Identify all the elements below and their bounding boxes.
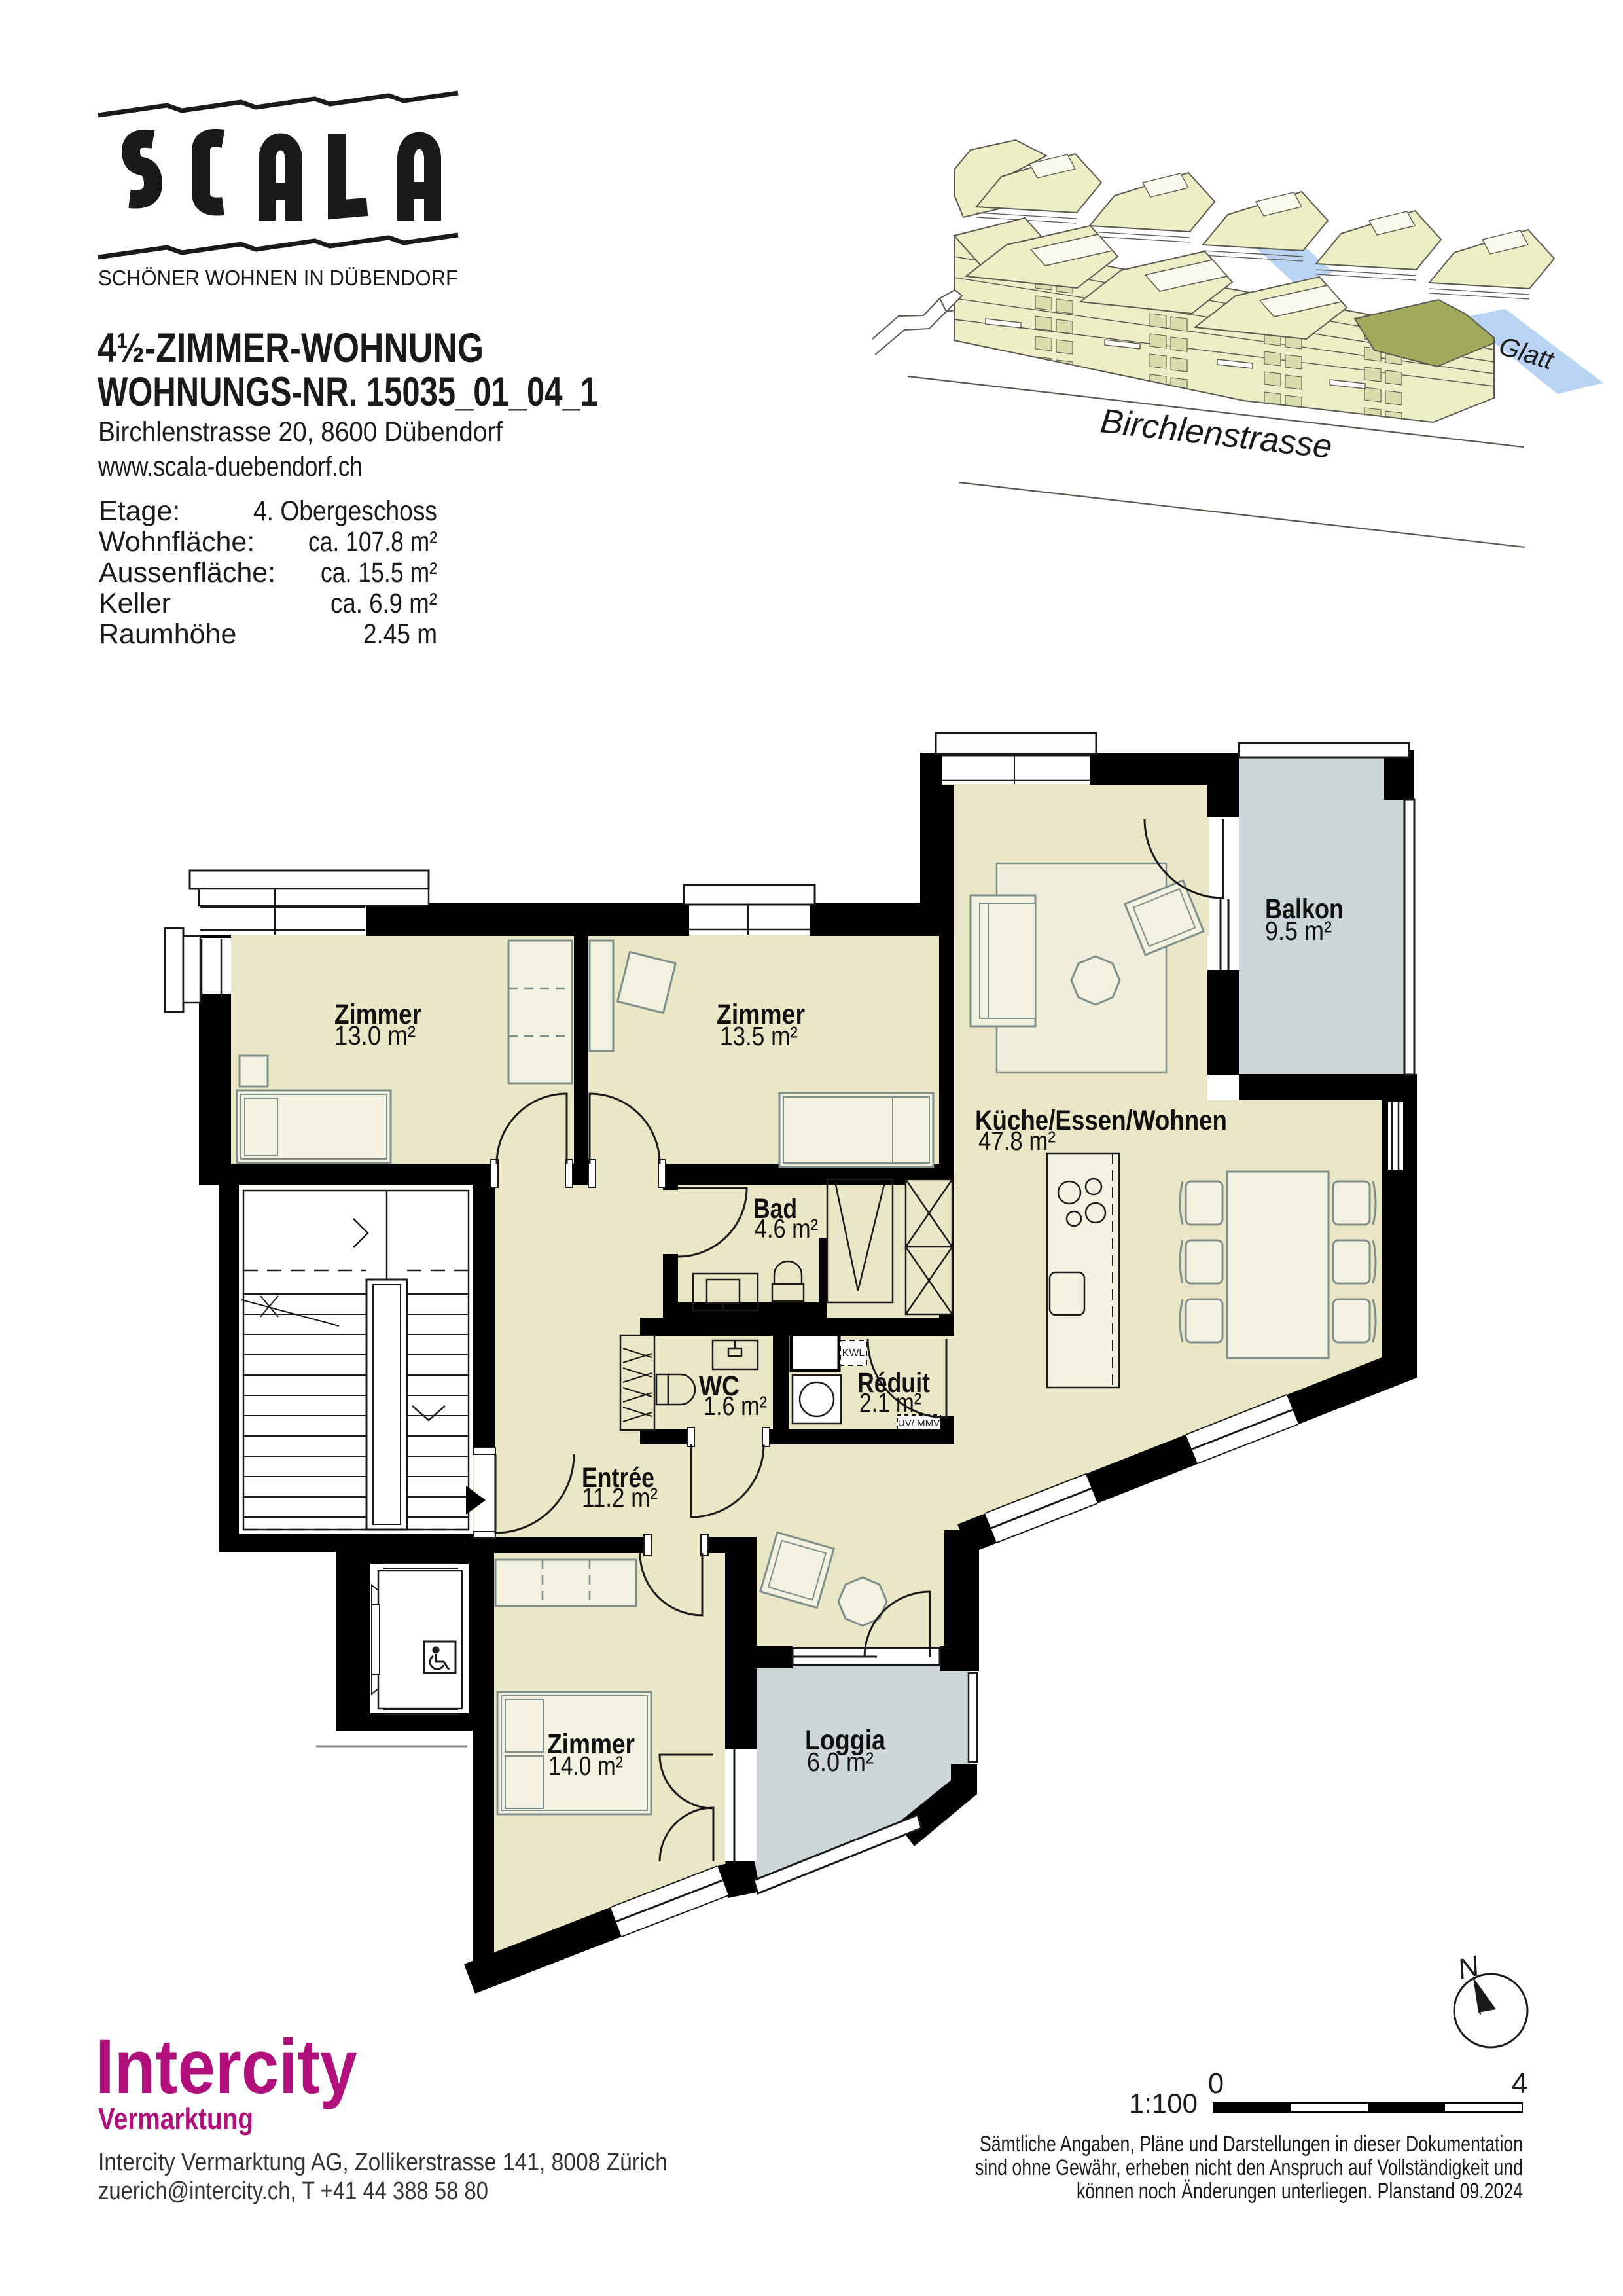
- svg-text:9.5 m²: 9.5 m²: [1265, 916, 1332, 946]
- svg-text:1.6 m²: 1.6 m²: [704, 1391, 767, 1421]
- svg-text:11.2 m²: 11.2 m²: [582, 1482, 658, 1513]
- svg-text:Etage:: Etage:: [99, 495, 180, 527]
- svg-text:Intercity: Intercity: [96, 2024, 357, 2110]
- svg-text:ca. 107.8 m²: ca. 107.8 m²: [308, 526, 437, 558]
- svg-text:1:100: 1:100: [1129, 2088, 1198, 2119]
- svg-text:KWL: KWL: [842, 1348, 865, 1359]
- svg-text:SCHÖNER WOHNEN IN DÜBENDORF: SCHÖNER WOHNEN IN DÜBENDORF: [98, 266, 458, 290]
- svg-text:13.0 m²: 13.0 m²: [334, 1020, 416, 1050]
- svg-text:sind ohne Gewähr, erheben nich: sind ohne Gewähr, erheben nicht den Ansp…: [975, 2155, 1523, 2180]
- svg-text:ca. 6.9 m²: ca. 6.9 m²: [330, 588, 437, 619]
- svg-text:Vermarktung: Vermarktung: [98, 2102, 253, 2136]
- svg-text:4.6 m²: 4.6 m²: [755, 1213, 818, 1244]
- svg-text:0: 0: [1208, 2068, 1224, 2100]
- svg-text:Intercity Vermarktung AG, Zoll: Intercity Vermarktung AG, Zollikerstrass…: [98, 2149, 668, 2176]
- svg-text:4½-ZIMMER-WOHNUNG: 4½-ZIMMER-WOHNUNG: [98, 325, 484, 371]
- svg-text:Keller: Keller: [99, 588, 171, 619]
- svg-text:4. Obergeschoss: 4. Obergeschoss: [253, 495, 437, 527]
- svg-text:Raumhöhe: Raumhöhe: [99, 619, 236, 650]
- svg-text:www.scala-duebendorf.ch: www.scala-duebendorf.ch: [98, 451, 363, 482]
- svg-text:13.5 m²: 13.5 m²: [720, 1021, 798, 1051]
- svg-text:14.0 m²: 14.0 m²: [548, 1751, 623, 1781]
- svg-text:2.1 m²: 2.1 m²: [859, 1388, 921, 1418]
- svg-text:Birchlenstrasse 20, 8600 Düben: Birchlenstrasse 20, 8600 Dübendorf: [98, 416, 503, 448]
- svg-text:Sämtliche Angaben, Pläne und D: Sämtliche Angaben, Pläne und Darstellung…: [980, 2132, 1523, 2157]
- svg-text:WOHNUNGS-NR. 15035_01_04_1: WOHNUNGS-NR. 15035_01_04_1: [98, 369, 598, 415]
- svg-text:ca. 15.5 m²: ca. 15.5 m²: [321, 557, 437, 588]
- svg-text:N: N: [1454, 1950, 1482, 1986]
- svg-text:2.45 m: 2.45 m: [363, 619, 437, 650]
- svg-text:47.8 m²: 47.8 m²: [978, 1126, 1056, 1156]
- svg-text:zuerich@intercity.ch, T +41 44: zuerich@intercity.ch, T +41 44 388 58 80: [98, 2178, 488, 2205]
- svg-text:6.0 m²: 6.0 m²: [807, 1747, 874, 1777]
- svg-text:Aussenfläche:: Aussenfläche:: [99, 557, 276, 588]
- svg-text:Wohnfläche:: Wohnfläche:: [99, 526, 255, 558]
- svg-text:können noch Änderungen unterli: können noch Änderungen unterliegen. Plan…: [1077, 2179, 1523, 2204]
- svg-text:UV/ MMV: UV/ MMV: [898, 1418, 940, 1429]
- svg-text:4: 4: [1512, 2068, 1527, 2100]
